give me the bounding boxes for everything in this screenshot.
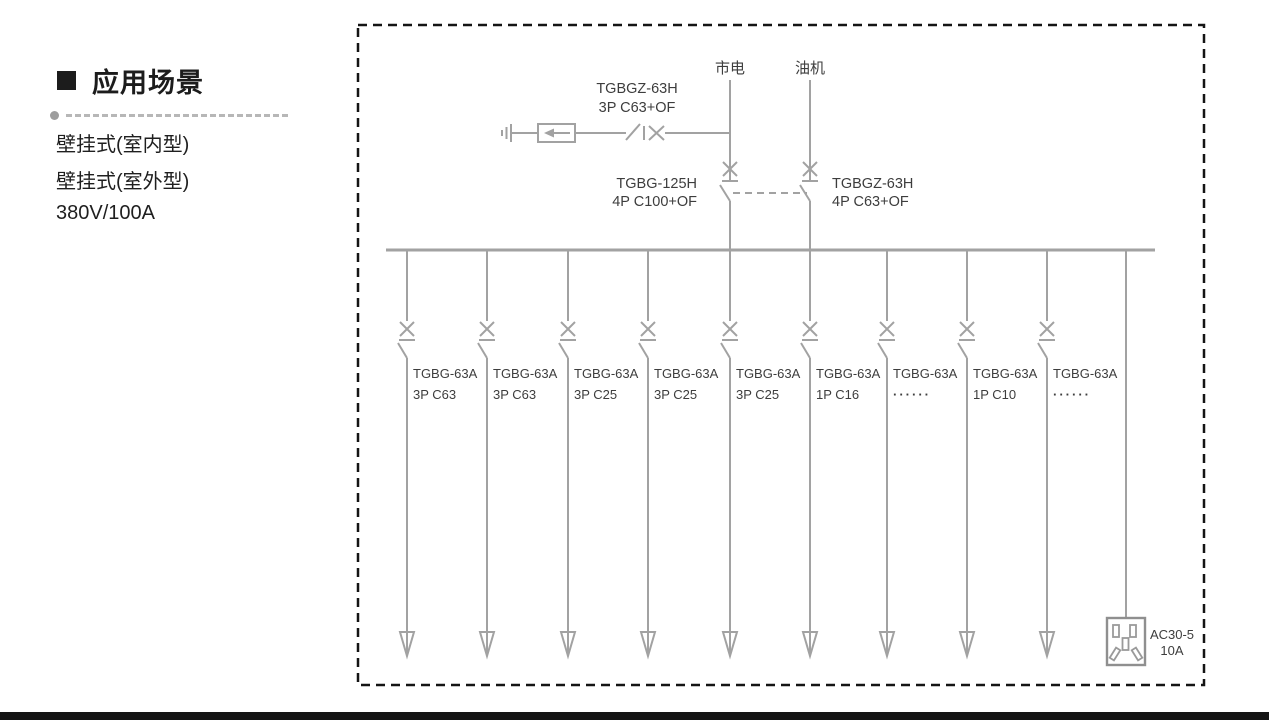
spd-breaker-model: TGBGZ-63H	[596, 81, 677, 97]
breaker-contact-icon	[649, 126, 664, 140]
breaker-contact-icon	[960, 322, 974, 336]
feeder-model: TGBG-63A	[973, 366, 1038, 381]
breaker-contact-icon	[641, 322, 655, 336]
feeder-model: TGBG-63A	[574, 366, 639, 381]
feeder-model: TGBG-63A	[736, 366, 801, 381]
feeder-model: TGBG-63A	[893, 366, 958, 381]
breaker-blade-icon	[478, 343, 487, 358]
breaker-blade-icon	[626, 124, 640, 140]
feeder-spec: 1P C16	[816, 387, 859, 402]
mains-source-label: 市电	[715, 60, 745, 77]
single-line-diagram: 市电 油机 TGBG-125H 4P C100+OF TGBGZ-63H 4P …	[0, 0, 1269, 721]
feeder-model: TGBG-63A	[816, 366, 881, 381]
feeder-model: TGBG-63A	[493, 366, 558, 381]
feeder-spec: 3P C63	[413, 387, 456, 402]
generator-incomer: 油机	[795, 60, 825, 251]
generator-breaker-model: TGBGZ-63H	[832, 176, 913, 192]
feeder-model: TGBG-63A	[654, 366, 719, 381]
breaker-blade-icon	[398, 343, 407, 358]
bottom-divider-bar	[0, 712, 1269, 720]
feeder-spec: 1P C10	[973, 387, 1016, 402]
feeder-model: TGBG-63A	[413, 366, 478, 381]
socket-model: AC30-5	[1150, 627, 1194, 642]
feeder-branch: TGBG-63A 3P C63	[478, 251, 558, 656]
ground-icon	[502, 124, 511, 142]
feeder-spec: ······	[1053, 387, 1091, 402]
feeder-branch: TGBG-63A 1P C10	[958, 251, 1038, 656]
breaker-blade-icon	[559, 343, 568, 358]
socket-rating: 10A	[1160, 643, 1183, 658]
mains-incomer: 市电	[715, 60, 745, 251]
feeder-model: TGBG-63A	[1053, 366, 1118, 381]
page: 应用场景 壁挂式(室内型) 壁挂式(室外型) 380V/100A 市电 油机	[0, 0, 1269, 721]
mains-breaker-spec: 4P C100+OF	[612, 194, 697, 210]
breaker-blade-icon	[801, 343, 810, 358]
breaker-contact-icon	[880, 322, 894, 336]
breaker-blade-icon	[878, 343, 887, 358]
feeder-branch: TGBG-63A 3P C25	[639, 251, 719, 656]
feeder-branch: TGBG-63A 1P C16	[801, 251, 881, 656]
breaker-blade-icon	[639, 343, 648, 358]
feeder-spec: 3P C25	[654, 387, 697, 402]
breaker-blade-icon	[958, 343, 967, 358]
feeder-spec: 3P C63	[493, 387, 536, 402]
feeder-branch: TGBG-63A ······	[1038, 251, 1118, 656]
socket-icon	[1107, 618, 1145, 665]
spd-breaker-spec: 3P C63+OF	[599, 100, 676, 116]
breaker-contact-icon	[561, 322, 575, 336]
breaker-contact-icon	[1040, 322, 1054, 336]
feeder-spec: 3P C25	[736, 387, 779, 402]
socket-branch: AC30-5 10A	[1107, 251, 1194, 665]
breaker-blade-icon	[1038, 343, 1047, 358]
feeder-branch: TGBG-63A 3P C25	[721, 251, 801, 656]
breaker-contact-icon	[400, 322, 414, 336]
feeder-branch: TGBG-63A 3P C25	[559, 251, 639, 656]
spd-icon	[538, 124, 575, 142]
feeder-spec: 3P C25	[574, 387, 617, 402]
breaker-blade-icon	[721, 343, 730, 358]
mains-breaker-model: TGBG-125H	[616, 176, 697, 192]
generator-breaker-spec: 4P C63+OF	[832, 194, 909, 210]
breaker-contact-icon	[480, 322, 494, 336]
feeder-spec: ······	[893, 387, 931, 402]
generator-source-label: 油机	[795, 60, 825, 77]
feeder-branch: TGBG-63A 3P C63	[398, 251, 478, 656]
spd-branch: TGBGZ-63H 3P C63+OF	[502, 81, 730, 142]
breaker-contact-icon	[723, 322, 737, 336]
breaker-contact-icon	[803, 322, 817, 336]
feeder-branch: TGBG-63A ······	[878, 251, 958, 656]
breaker-blade-icon	[720, 185, 730, 201]
